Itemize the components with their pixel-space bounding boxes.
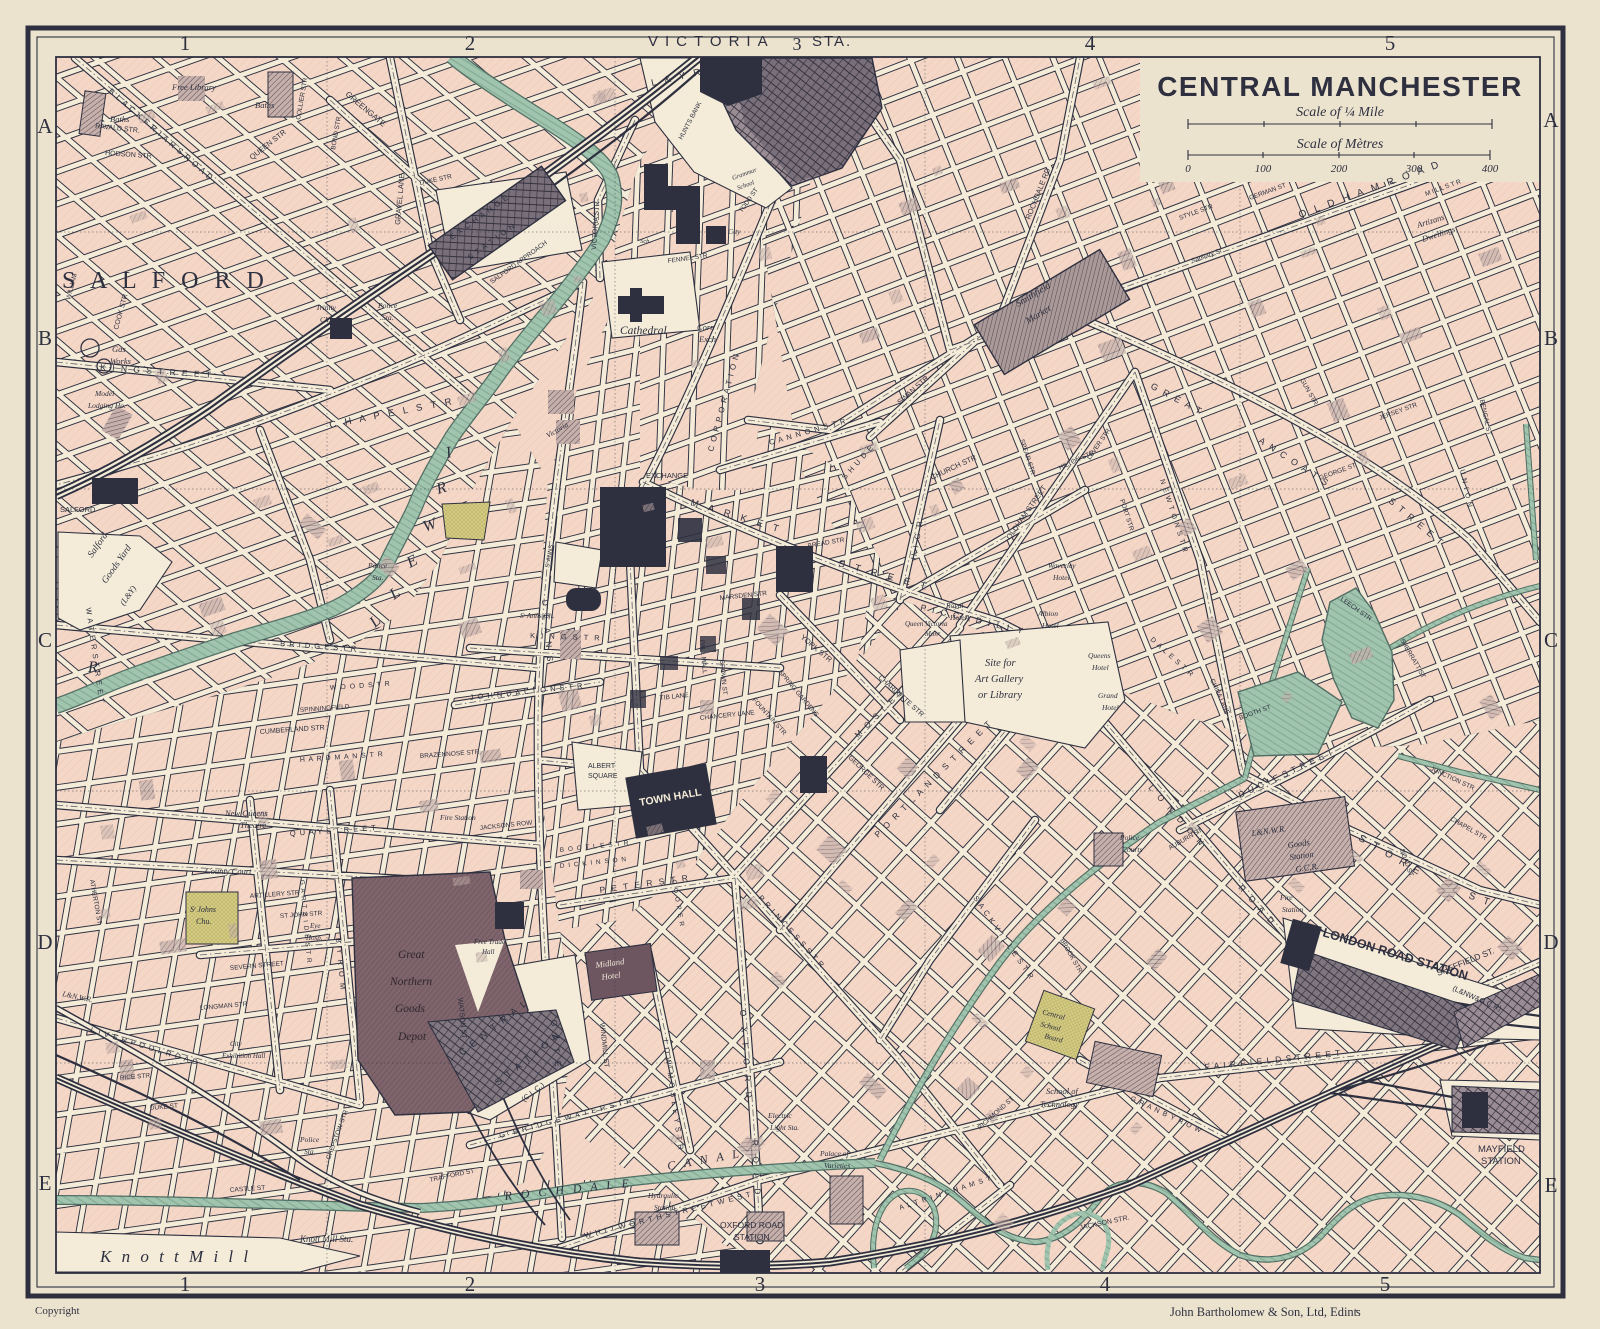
svg-text:Scale of Mètres: Scale of Mètres (1297, 137, 1384, 152)
svg-text:Northern: Northern (389, 976, 432, 988)
svg-text:Chetham: Chetham (652, 190, 683, 200)
svg-text:2: 2 (465, 1272, 476, 1296)
svg-text:Depot: Depot (397, 1031, 427, 1043)
svg-text:Grand: Grand (1098, 691, 1118, 700)
svg-text:Gas: Gas (112, 344, 126, 354)
svg-text:Sᵗ Anns Ch.: Sᵗ Anns Ch. (520, 611, 554, 620)
svg-text:SQUARE: SQUARE (588, 773, 618, 780)
svg-text:Free Trade: Free Trade (473, 938, 505, 946)
svg-text:C: C (1544, 628, 1558, 652)
svg-text:Technology: Technology (1040, 1099, 1079, 1109)
svg-text:Fire: Fire (1279, 893, 1293, 902)
svg-text:400: 400 (1482, 163, 1499, 175)
svg-text:VICTORIA: VICTORIA (648, 33, 775, 50)
svg-text:STA.: STA. (812, 33, 852, 50)
svg-text:D: D (37, 930, 52, 954)
svg-text:Chu.: Chu. (196, 917, 211, 926)
svg-text:C: C (38, 628, 52, 652)
svg-text:4: 4 (1100, 1272, 1111, 1296)
svg-text:Hosp.: Hosp. (305, 934, 323, 942)
svg-text:S A L F O R D: S A L F O R D (62, 268, 269, 294)
svg-text:Police: Police (367, 561, 388, 570)
svg-text:Sch.: Sch. (640, 238, 651, 245)
svg-text:0: 0 (1185, 163, 1191, 175)
svg-text:Scale of ¼ Mile: Scale of ¼ Mile (1296, 105, 1384, 120)
svg-text:Exch: Exch (698, 334, 716, 344)
svg-text:Lodging Ho.: Lodging Ho. (87, 401, 126, 410)
svg-text:ALBERT: ALBERT (588, 763, 616, 770)
svg-text:200: 200 (1331, 163, 1348, 175)
svg-text:City: City (230, 1040, 243, 1048)
svg-text:or Library: or Library (978, 690, 1022, 701)
svg-text:Hotel: Hotel (1101, 703, 1119, 712)
svg-text:Ch.: Ch. (320, 315, 331, 324)
svg-text:Monᵖ: Monᵖ (924, 630, 941, 638)
svg-text:Hotel: Hotel (949, 613, 967, 622)
svg-text:Courts: Courts (1122, 845, 1143, 854)
svg-text:New Queens: New Queens (224, 808, 268, 818)
svg-text:Hotel: Hotel (1041, 621, 1059, 630)
svg-text:School of: School of (1046, 1086, 1080, 1096)
svg-text:Police: Police (377, 301, 398, 310)
svg-text:B: B (1544, 326, 1558, 350)
svg-text:Model: Model (94, 389, 114, 398)
svg-text:Police: Police (1119, 833, 1140, 842)
svg-text:Station: Station (654, 1203, 676, 1212)
svg-text:Baths: Baths (255, 100, 275, 110)
svg-text:Hall: Hall (481, 948, 495, 956)
svg-text:EXCHANGE: EXCHANGE (646, 471, 688, 480)
svg-text:Copyright: Copyright (35, 1305, 80, 1317)
svg-text:Trinity: Trinity (316, 303, 337, 312)
svg-text:Station: Station (1282, 905, 1304, 914)
svg-text:Art Gallery: Art Gallery (974, 674, 1023, 685)
svg-text:B: B (38, 326, 52, 350)
svg-text:Police: Police (299, 1135, 320, 1144)
svg-text:Royal: Royal (945, 601, 964, 610)
svg-text:STATION: STATION (734, 1232, 770, 1242)
svg-text:3: 3 (793, 34, 802, 54)
svg-text:1: 1 (180, 1272, 191, 1296)
svg-text:Exhibition Hall: Exhibition Hall (221, 1052, 265, 1060)
svg-text:Knott Mill Sta.: Knott Mill Sta. (299, 1234, 353, 1244)
svg-text:OXFORD ROAD: OXFORD ROAD (720, 1220, 783, 1230)
svg-text:Palace of: Palace of (819, 1149, 849, 1158)
svg-text:Site for: Site for (985, 658, 1017, 669)
svg-text:Light Sta.: Light Sta. (769, 1123, 799, 1132)
svg-text:2: 2 (465, 31, 476, 55)
svg-text:5: 5 (1385, 31, 1396, 55)
svg-text:Waverley: Waverley (1048, 561, 1076, 570)
svg-text:SALFORD: SALFORD (60, 505, 96, 514)
svg-text:Sta.: Sta. (382, 313, 394, 322)
svg-text:City: City (728, 227, 741, 236)
svg-text:K n o t t M i l l: K n o t t M i l l (99, 1247, 251, 1266)
svg-text:MAYFIELD: MAYFIELD (1478, 1144, 1525, 1155)
svg-text:E: E (39, 1171, 52, 1195)
svg-text:5: 5 (1380, 1272, 1391, 1296)
svg-text:Hotel: Hotel (1091, 663, 1109, 672)
svg-text:Baths: Baths (110, 114, 130, 124)
svg-text:Goods: Goods (395, 1003, 426, 1015)
svg-text:Hydraulic: Hydraulic (647, 1191, 679, 1200)
svg-text:1: 1 (180, 31, 191, 55)
svg-text:Works: Works (110, 356, 132, 366)
svg-text:Sta.: Sta. (304, 1147, 316, 1156)
svg-text:Sᵗ Johns: Sᵗ Johns (190, 905, 216, 914)
svg-text:CENTRAL MANCHESTER: CENTRAL MANCHESTER (1157, 71, 1523, 102)
svg-text:Queen Victoria: Queen Victoria (905, 620, 948, 628)
svg-text:Hosp.: Hosp. (657, 202, 678, 212)
svg-text:4: 4 (1085, 31, 1096, 55)
svg-text:STATION: STATION (1481, 1156, 1521, 1167)
svg-text:Corn: Corn (697, 322, 714, 332)
svg-text:Free Library: Free Library (171, 82, 216, 92)
svg-text:Fire Station: Fire Station (439, 813, 476, 822)
svg-text:County Court: County Court (205, 866, 252, 876)
svg-text:100: 100 (1255, 163, 1272, 175)
svg-text:Eye: Eye (309, 922, 321, 930)
svg-text:Sta.: Sta. (372, 573, 384, 582)
svg-text:Hotel: Hotel (1052, 573, 1070, 582)
svg-text:Cathedral: Cathedral (620, 325, 667, 337)
svg-text:A: A (1543, 108, 1559, 132)
svg-text:Theatre: Theatre (240, 820, 266, 830)
svg-text:A: A (37, 114, 53, 138)
svg-text:Queens: Queens (1088, 651, 1111, 660)
svg-text:Albion: Albion (1037, 609, 1058, 618)
svg-text:John Bartholomew & Son, Ltd, E: John Bartholomew & Son, Ltd, Edinʦ (1170, 1305, 1361, 1319)
svg-text:D: D (1543, 930, 1558, 954)
svg-text:E: E (1545, 1173, 1558, 1197)
svg-text:3: 3 (755, 1272, 766, 1296)
svg-text:Electric: Electric (767, 1111, 792, 1120)
svg-text:Great: Great (398, 949, 425, 961)
svg-text:Varieties: Varieties (824, 1161, 850, 1170)
